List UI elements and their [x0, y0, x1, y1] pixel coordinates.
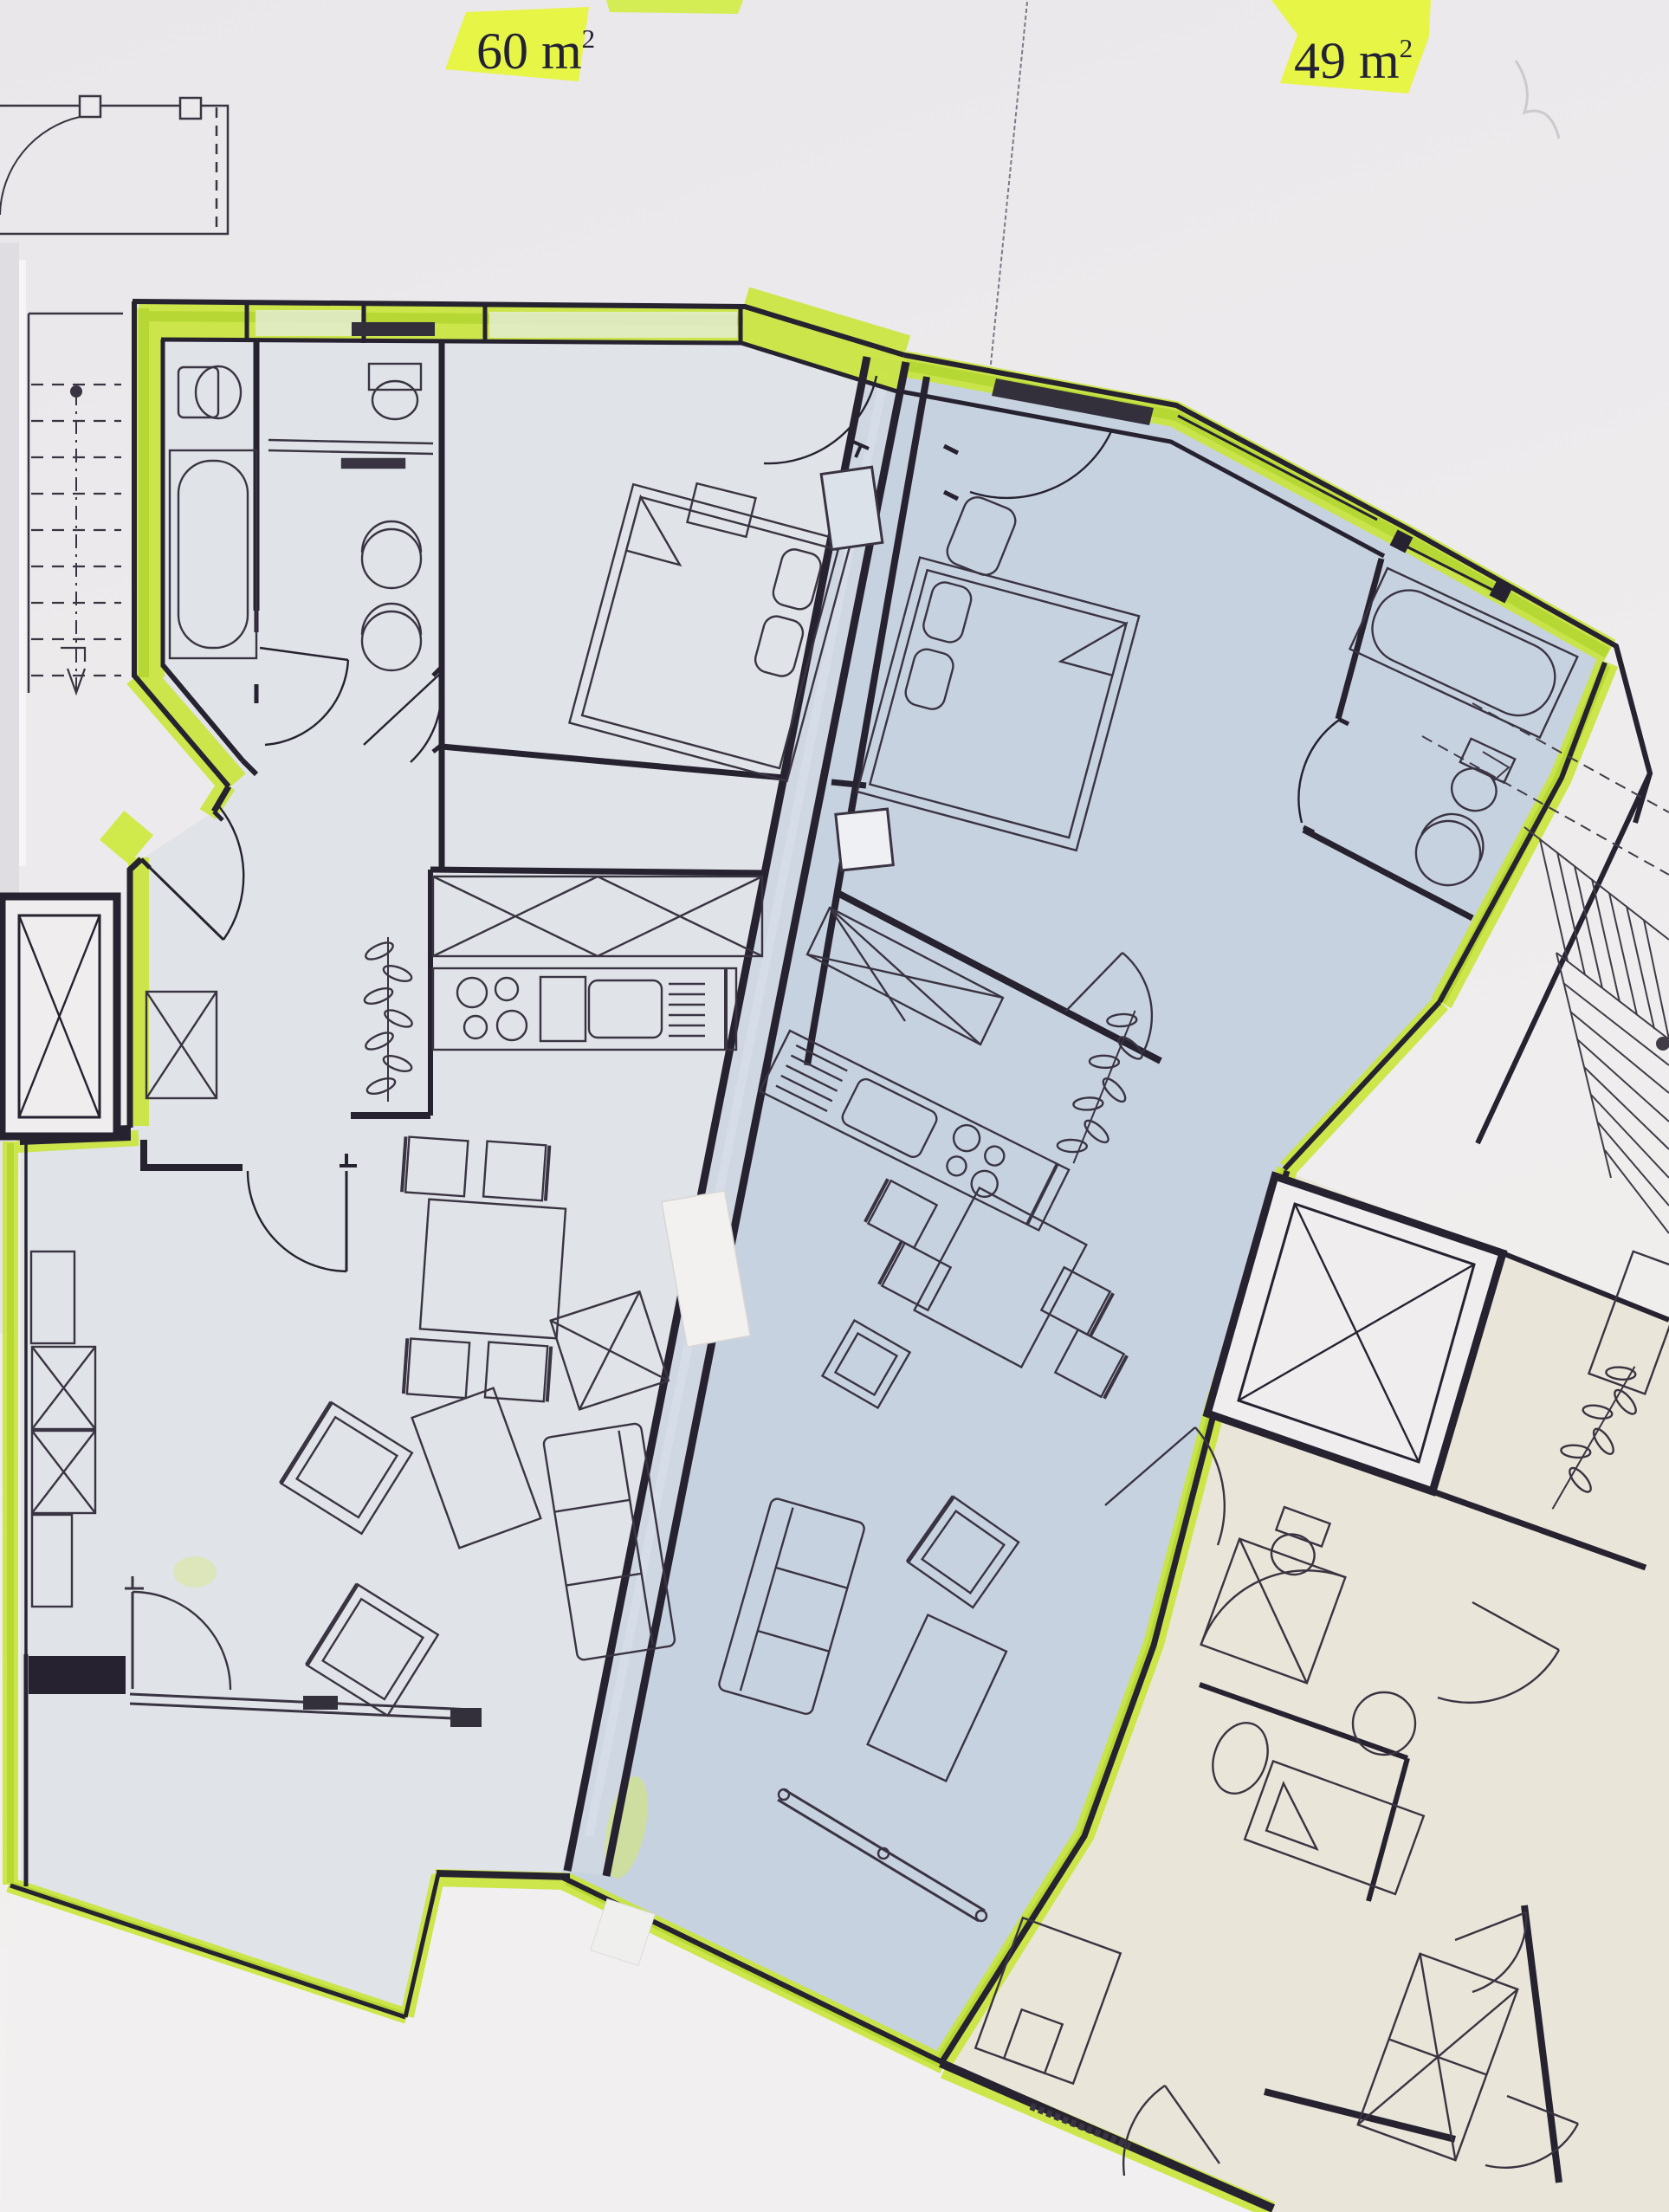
svg-text:60 m2: 60 m2 — [476, 23, 595, 80]
svg-text:49 m2: 49 m2 — [1294, 32, 1413, 89]
